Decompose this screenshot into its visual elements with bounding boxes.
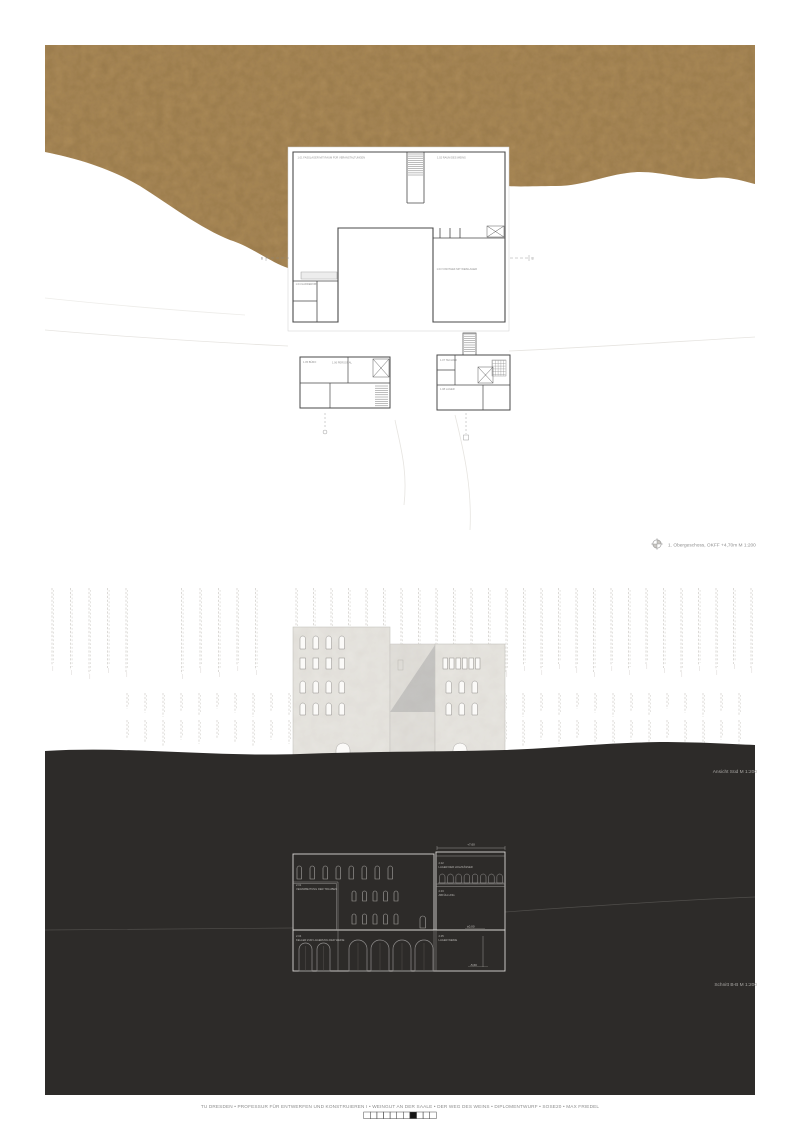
svg-text:±0,00: ±0,00 <box>467 925 475 929</box>
page-box <box>377 1112 384 1119</box>
page-box <box>403 1112 410 1119</box>
page-box <box>423 1112 430 1119</box>
page-box <box>397 1112 404 1119</box>
svg-text:2.02: 2.02 <box>439 861 445 865</box>
svg-text:ABFÜLLUNG: ABFÜLLUNG <box>439 893 455 897</box>
page-box <box>384 1112 391 1119</box>
svg-text:2.01: 2.01 <box>296 883 302 887</box>
svg-text:LAGER DER HOLZFÄSSER: LAGER DER HOLZFÄSSER <box>439 865 473 869</box>
ground-fill <box>45 742 755 1095</box>
board-canvas: B B 1.01 FASSLAGER MIT RAUM FÜR VERANSTA… <box>0 0 800 1131</box>
section-caption: Schnitt B-B M 1:200 <box>714 982 757 988</box>
room-label-102: 1.02 RAUM DES WEINS <box>437 156 466 160</box>
elevation-caption: Ansicht Süd M 1:200 <box>713 769 758 775</box>
page-indicator <box>364 1112 437 1119</box>
svg-text:+7,60: +7,60 <box>467 843 475 847</box>
room-label-104: 1.04 GARDEROBE <box>296 282 319 286</box>
plan-sheet <box>288 147 509 331</box>
plan-scale-label: 1. Obergeschoss, OKFF +4,70m M 1:200 <box>668 543 756 549</box>
north-icon <box>651 538 663 550</box>
svg-text:VERARBEITUNG DER TRAUBEN: VERARBEITUNG DER TRAUBEN <box>296 887 337 891</box>
page-box <box>370 1112 377 1119</box>
presentation-board: B B 1.01 FASSLAGER MIT RAUM FÜR VERANSTA… <box>0 0 800 1131</box>
outbuilding-a <box>300 357 390 408</box>
page-box <box>364 1112 371 1119</box>
room-label-103: 1.03 VINOTHEK MIT WEINLAGER <box>437 267 478 271</box>
section-marker-b-right: B <box>532 257 534 261</box>
page-box <box>430 1112 437 1119</box>
contour-lines <box>45 298 755 530</box>
room-label-106: 1.06 PERSONAL <box>332 361 352 365</box>
svg-text:2.04: 2.04 <box>296 934 302 938</box>
svg-text:LAGER WEINE: LAGER WEINE <box>439 938 458 942</box>
footer-credits: TU DRESDEN • PROFESSUR FÜR ENTWERFEN UND… <box>201 1103 600 1109</box>
room-label-108: 1.08 LAGER <box>440 387 455 391</box>
svg-text:KELLER ZUR LAGERUNG DER WEINE: KELLER ZUR LAGERUNG DER WEINE <box>296 938 345 942</box>
svg-text:2.05: 2.05 <box>439 934 445 938</box>
svg-text:-5,60: -5,60 <box>470 963 477 967</box>
page-box <box>410 1112 417 1119</box>
outbuilding-b <box>437 333 510 410</box>
svg-text:2.03: 2.03 <box>439 889 445 893</box>
section-marker-b-left: B <box>261 257 263 261</box>
ground-band: Ansicht Süd M 1:200 Schnitt B-B M 1:200 … <box>45 742 757 1095</box>
south-elevation <box>293 627 505 757</box>
room-label-107: 1.07 TECHNIK <box>440 358 457 362</box>
room-label-105: 1.05 BÜRO <box>303 360 316 364</box>
room-label-101: 1.01 FASSLAGER MIT RAUM FÜR VERANSTALTUN… <box>298 156 366 160</box>
page-box <box>417 1112 424 1119</box>
page-box <box>390 1112 397 1119</box>
floor-plan: B B 1.01 FASSLAGER MIT RAUM FÜR VERANSTA… <box>261 147 534 440</box>
